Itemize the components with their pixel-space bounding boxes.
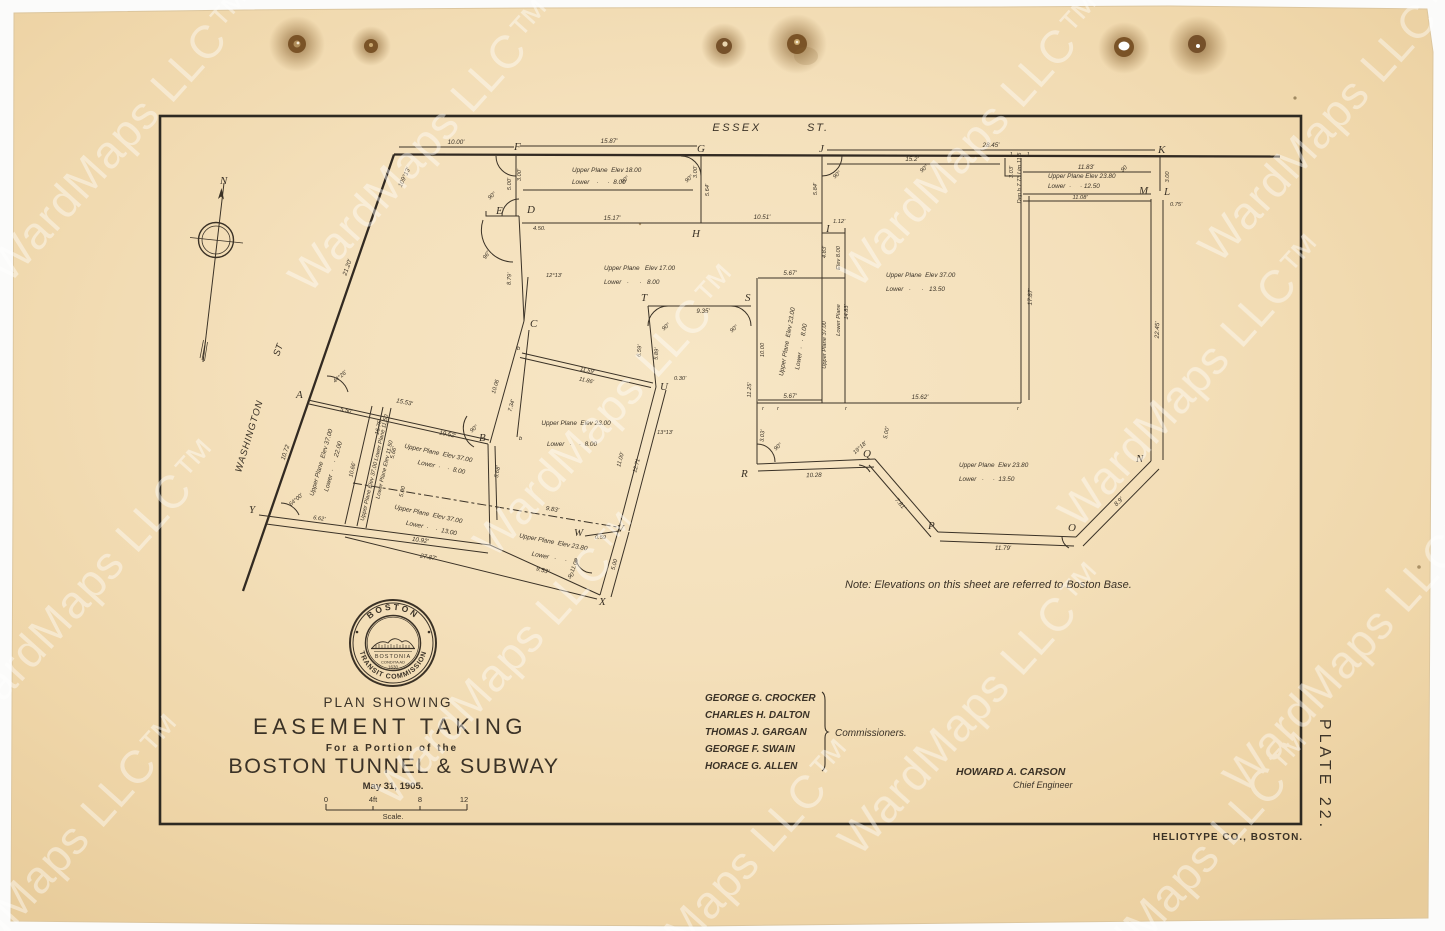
svg-text:Dep h 7.73 Lim 11.5: Dep h 7.73 Lim 11.5 bbox=[1017, 152, 1023, 204]
svg-text:Lower · · 13.50: Lower · · 13.50 bbox=[959, 476, 1015, 483]
svg-text:J: J bbox=[1025, 152, 1029, 158]
svg-text:H: H bbox=[691, 228, 701, 240]
svg-text:Q: Q bbox=[863, 448, 871, 460]
svg-text:HOWARD A. CARSON: HOWARD A. CARSON bbox=[956, 766, 1066, 778]
svg-text:L: L bbox=[1163, 186, 1170, 198]
svg-text:HORACE G. ALLEN: HORACE G. ALLEN bbox=[705, 761, 798, 772]
svg-text:5.64': 5.64' bbox=[705, 183, 711, 196]
svg-text:M: M bbox=[1138, 185, 1149, 197]
svg-text:5.84': 5.84' bbox=[813, 182, 819, 195]
svg-text:G: G bbox=[697, 143, 705, 155]
svg-text:Upper Plane Elev 23.80: Upper Plane Elev 23.80 bbox=[959, 462, 1029, 469]
svg-text:PLATE 22.: PLATE 22. bbox=[1316, 719, 1333, 831]
svg-text:13°13': 13°13' bbox=[657, 430, 674, 436]
svg-text:10.00: 10.00 bbox=[760, 342, 766, 357]
svg-text:4.83': 4.83' bbox=[822, 245, 828, 258]
svg-text:R: R bbox=[740, 468, 748, 480]
svg-text:b: b bbox=[519, 436, 522, 442]
svg-text:Upper Plane Elev 18.00: Upper Plane Elev 18.00 bbox=[572, 167, 642, 174]
svg-text:15.87': 15.87' bbox=[601, 138, 618, 145]
svg-text:1630: 1630 bbox=[388, 665, 399, 670]
svg-text:8: 8 bbox=[418, 795, 422, 804]
svg-text:GEORGE F. SWAIN: GEORGE F. SWAIN bbox=[705, 744, 796, 755]
svg-text:10.51': 10.51' bbox=[754, 214, 771, 221]
svg-text:5.67': 5.67' bbox=[783, 270, 797, 277]
svg-text:1.12': 1.12' bbox=[833, 219, 846, 225]
svg-text:12: 12 bbox=[460, 795, 468, 804]
svg-text:11.83': 11.83' bbox=[1078, 164, 1095, 171]
svg-text:Lower · · 12.50: Lower · · 12.50 bbox=[1048, 183, 1100, 190]
svg-text:15.62': 15.62' bbox=[912, 394, 929, 401]
svg-text:0: 0 bbox=[324, 795, 328, 804]
svg-text:Commissioners.: Commissioners. bbox=[835, 728, 907, 739]
svg-text:10.28: 10.28 bbox=[806, 472, 822, 480]
svg-text:C: C bbox=[530, 318, 538, 330]
svg-text:15.17': 15.17' bbox=[604, 215, 621, 222]
svg-text:E: E bbox=[495, 205, 503, 217]
svg-text:D: D bbox=[526, 204, 535, 216]
svg-text:0.75': 0.75' bbox=[1170, 202, 1183, 208]
svg-text:11.25': 11.25' bbox=[747, 382, 754, 398]
svg-text:14.83': 14.83' bbox=[844, 303, 850, 319]
svg-text:Lower · · 13.50: Lower · · 13.50 bbox=[886, 286, 945, 293]
svg-text:THOMAS J. GARGAN: THOMAS J. GARGAN bbox=[705, 727, 807, 738]
svg-text:F: F bbox=[513, 141, 521, 153]
svg-text:Lower · · 8.00: Lower · · 8.00 bbox=[604, 279, 660, 286]
svg-text:Chief Engineer: Chief Engineer bbox=[1013, 780, 1074, 790]
svg-text:5.67': 5.67' bbox=[783, 393, 797, 400]
svg-text:Upper Plane 37.00: Upper Plane 37.00 bbox=[822, 320, 828, 368]
svg-text:Lower Plane: Lower Plane bbox=[836, 304, 842, 336]
svg-text:Upper Plane Elev 23.80: Upper Plane Elev 23.80 bbox=[1048, 173, 1116, 180]
svg-text:8.79': 8.79' bbox=[507, 272, 514, 285]
svg-text:X: X bbox=[598, 596, 607, 608]
svg-text:Lower · · 8.00: Lower · · 8.00 bbox=[572, 179, 626, 186]
svg-text:22.45': 22.45' bbox=[1154, 321, 1162, 340]
svg-text:3.00: 3.00 bbox=[1165, 171, 1171, 183]
svg-text:K: K bbox=[1157, 144, 1166, 156]
svg-text:GEORGE G. CROCKER: GEORGE G. CROCKER bbox=[705, 693, 816, 704]
svg-text:11.79': 11.79' bbox=[995, 545, 1012, 552]
svg-text:CHARLES H. DALTON: CHARLES H. DALTON bbox=[705, 710, 810, 721]
svg-text:11.08': 11.08' bbox=[1073, 195, 1089, 201]
svg-text:12°13': 12°13' bbox=[546, 273, 563, 279]
svg-text:Upper Plane Elev 17.00: Upper Plane Elev 17.00 bbox=[604, 265, 675, 272]
svg-text:17.87': 17.87' bbox=[1027, 288, 1035, 306]
svg-text:N: N bbox=[219, 175, 228, 187]
svg-text:ESSEX: ESSEX bbox=[712, 122, 761, 134]
svg-text:J: J bbox=[1008, 152, 1012, 158]
svg-text:P: P bbox=[927, 520, 935, 532]
svg-text:3.03': 3.03' bbox=[1009, 165, 1015, 178]
svg-text:4.50.: 4.50. bbox=[533, 226, 546, 232]
svg-text:T: T bbox=[641, 292, 648, 304]
svg-text:B: B bbox=[479, 432, 486, 444]
svg-text:0.30': 0.30' bbox=[674, 376, 687, 382]
svg-text:3.00': 3.00' bbox=[517, 168, 523, 181]
svg-text:4ft: 4ft bbox=[369, 795, 378, 804]
svg-text:b: b bbox=[517, 346, 520, 352]
svg-text:Upper Plane Elev 37.00: Upper Plane Elev 37.00 bbox=[886, 272, 956, 279]
svg-text:5.00': 5.00' bbox=[507, 177, 513, 190]
svg-text:3.03': 3.03' bbox=[759, 429, 766, 443]
svg-text:A: A bbox=[295, 389, 303, 401]
svg-text:3.00': 3.00' bbox=[693, 165, 699, 178]
svg-text:ST.: ST. bbox=[807, 122, 829, 134]
